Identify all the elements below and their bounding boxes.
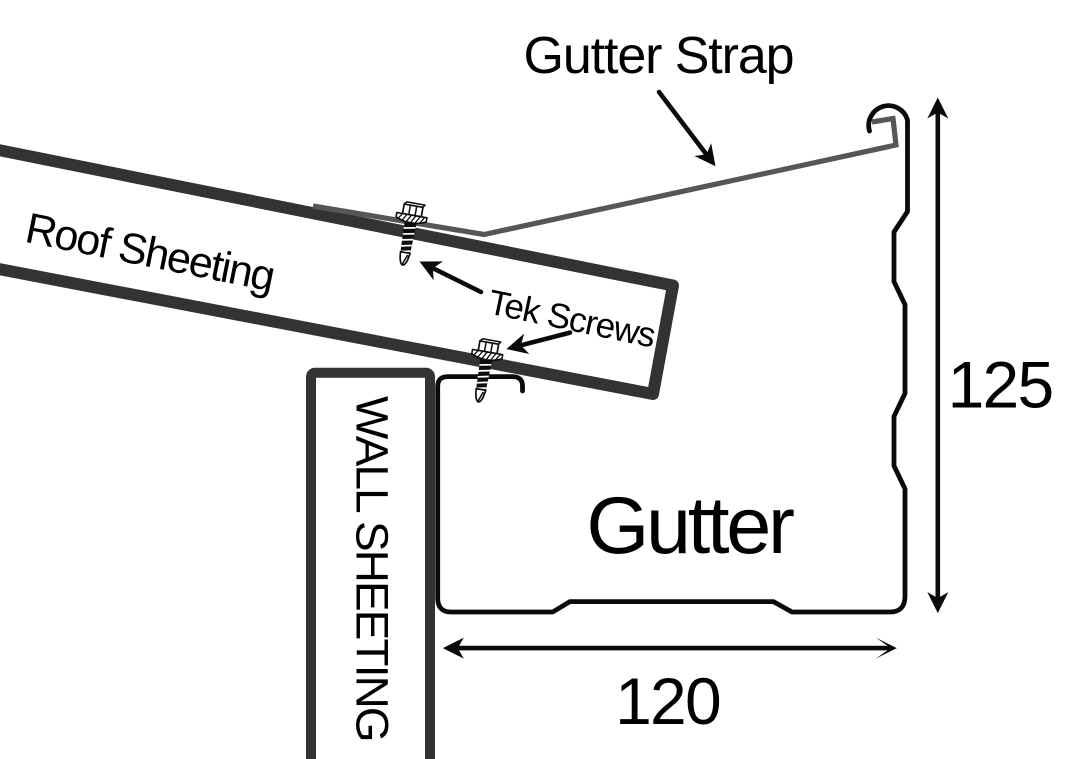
svg-text:120: 120 [615, 664, 720, 738]
svg-text:WALL SHEETING: WALL SHEETING [346, 396, 397, 741]
svg-text:Gutter: Gutter [586, 481, 794, 571]
svg-text:125: 125 [948, 348, 1053, 422]
svg-text:Gutter Strap: Gutter Strap [523, 27, 793, 85]
